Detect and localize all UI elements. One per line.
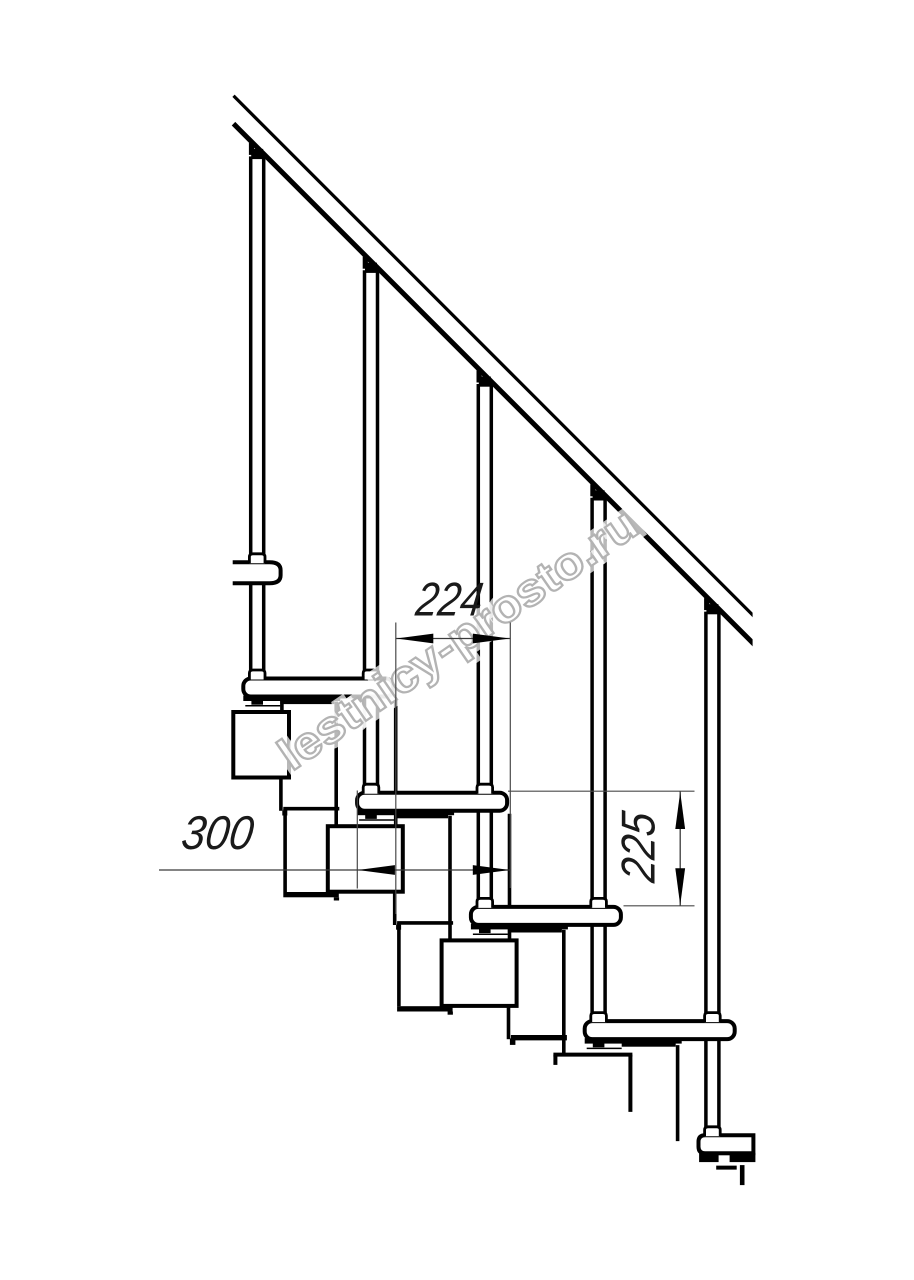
svg-text:225: 225 <box>613 808 666 886</box>
svg-text:224: 224 <box>412 574 486 627</box>
svg-text:300: 300 <box>178 807 257 860</box>
